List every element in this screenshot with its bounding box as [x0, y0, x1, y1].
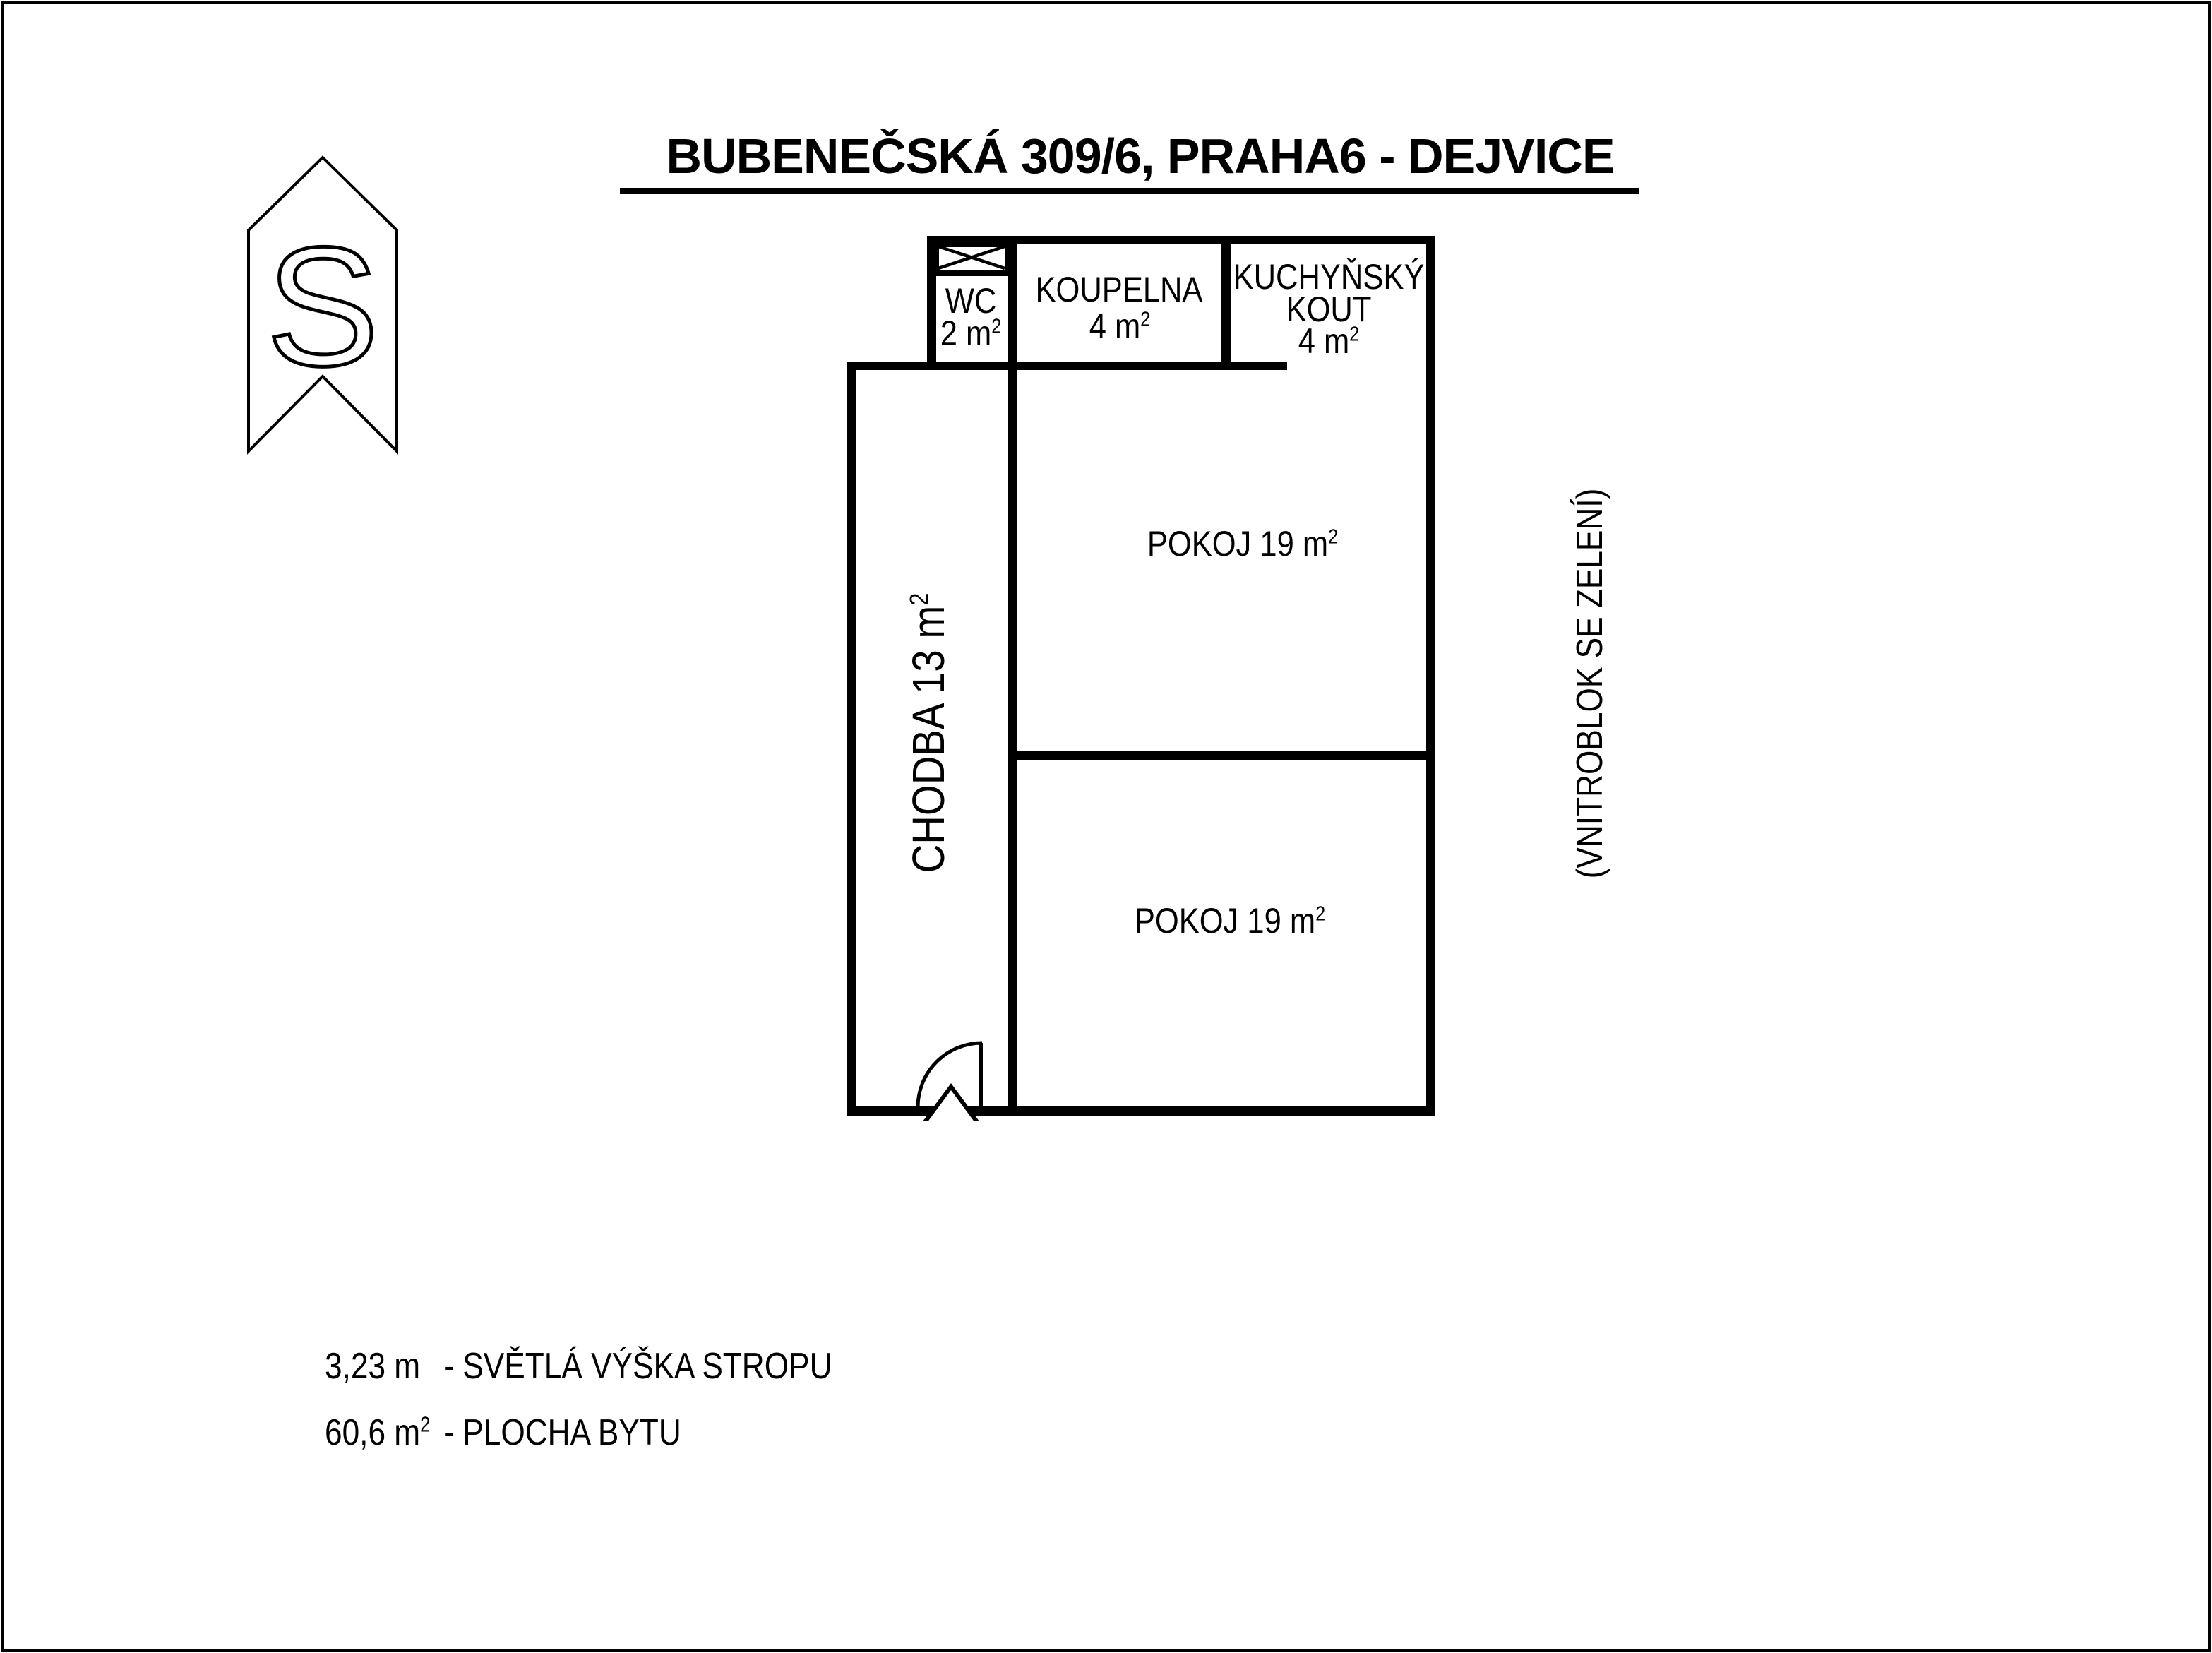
room-label-chodba: CHODBA 13 m2 — [906, 593, 951, 873]
room-label-pokoj-bottom: POKOJ 19 m2 — [1135, 903, 1325, 938]
kuchynsky-area: 4 m — [1298, 321, 1350, 361]
pokoj-bottom-sup: 2 — [1315, 902, 1325, 925]
room-area-koupelna: 4 m2 — [1089, 309, 1151, 344]
chodba-sup: 2 — [904, 593, 934, 606]
koupelna-area: 4 m — [1089, 306, 1141, 346]
wc-area-sup: 2 — [991, 315, 1001, 338]
chodba-label: CHODBA 13 m — [903, 606, 954, 873]
pokoj-bottom-label: POKOJ 19 m — [1135, 901, 1315, 941]
legend-row-apartment-area: 60,6 m2- PLOCHA BYTU — [325, 1412, 681, 1455]
room-label-koupelna: KOUPELNA — [1036, 272, 1203, 307]
floor-plan: WC 2 m2 KOUPELNA 4 m2 KUCHYŇSKÝ KOUT 4 m… — [843, 232, 1440, 1121]
room-label-pokoj-top: POKOJ 19 m2 — [1147, 526, 1338, 561]
room-area-kuchynsky: 4 m2 — [1298, 323, 1360, 359]
floor-plan-page: BUBENEČSKÁ 309/6, PRAHA6 - DEJVICE S — [0, 0, 2212, 1653]
entrance-arrow-icon — [913, 1087, 989, 1121]
legend-label-area: - PLOCHA BYTU — [443, 1412, 681, 1453]
koupelna-area-sup: 2 — [1140, 308, 1150, 330]
courtyard-annotation-text: (VNITROBLOK SE ZELENÍ) — [1570, 489, 1610, 879]
koupelna-name: KOUPELNA — [1036, 270, 1203, 309]
title-underline — [620, 188, 1639, 194]
legend-row-ceiling-height: 3,23 m- SVĚTLÁ VÝŠKA STROPU — [325, 1346, 832, 1388]
page-title: BUBENEČSKÁ 309/6, PRAHA6 - DEJVICE — [611, 131, 1670, 181]
legend-value-area: 60,6 m2 — [325, 1412, 443, 1455]
wc-area: 2 m — [940, 314, 992, 353]
legend-value-area-text: 60,6 m — [325, 1412, 420, 1453]
pokoj-top-sup: 2 — [1328, 525, 1338, 548]
courtyard-annotation: (VNITROBLOK SE ZELENÍ) — [1572, 489, 1608, 879]
legend-value-ceiling: 3,23 m — [325, 1346, 443, 1388]
kuchynsky-area-sup: 2 — [1349, 323, 1359, 345]
room-area-wc: 2 m2 — [940, 316, 1002, 351]
north-indicator: S — [240, 145, 409, 460]
legend-value-ceiling-text: 3,23 m — [325, 1346, 420, 1387]
legend-value-area-sup: 2 — [420, 1414, 430, 1437]
north-letter: S — [266, 212, 379, 401]
legend-label-ceiling: - SVĚTLÁ VÝŠKA STROPU — [443, 1346, 832, 1387]
pokoj-top-label: POKOJ 19 m — [1147, 524, 1328, 563]
